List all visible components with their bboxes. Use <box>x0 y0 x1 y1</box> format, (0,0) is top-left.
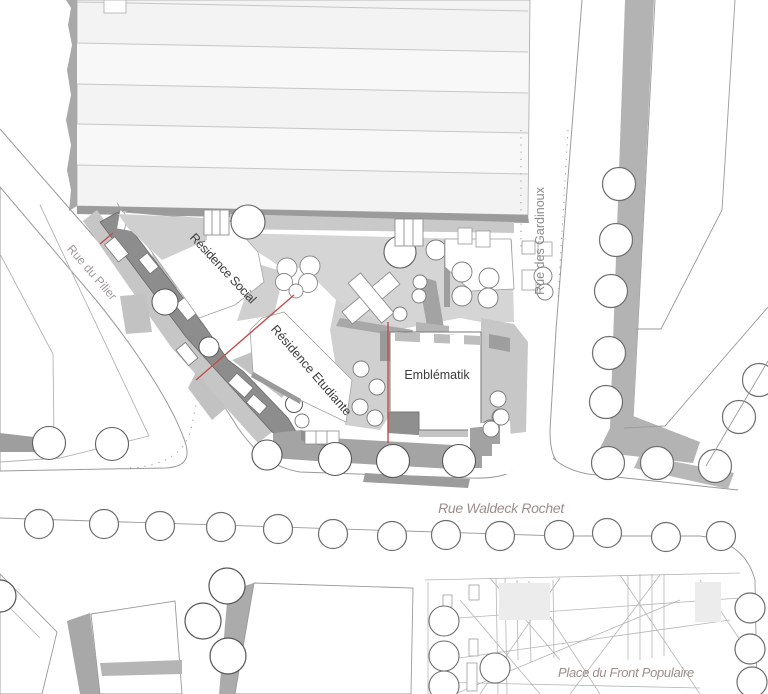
svg-text:Emblématik: Emblématik <box>404 368 470 382</box>
svg-text:Rue des Gardinoux: Rue des Gardinoux <box>533 186 547 294</box>
svg-text:Place du Front Populaire: Place du Front Populaire <box>558 665 694 680</box>
svg-text:Rue Waldeck Rochet: Rue Waldeck Rochet <box>438 500 565 516</box>
